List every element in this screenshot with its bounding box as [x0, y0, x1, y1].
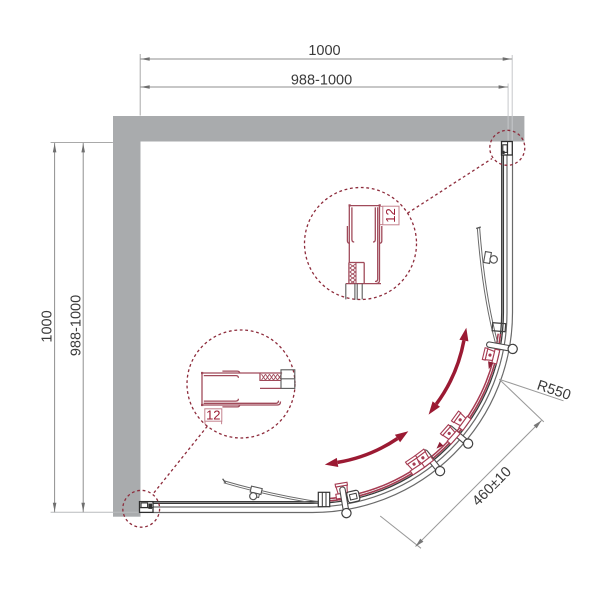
svg-text:12: 12 [206, 408, 220, 423]
svg-text:1000: 1000 [40, 310, 56, 342]
svg-text:12: 12 [383, 208, 398, 222]
svg-text:1000: 1000 [308, 43, 340, 59]
svg-text:988-1000: 988-1000 [291, 73, 352, 89]
svg-text:988-1000: 988-1000 [69, 295, 85, 356]
